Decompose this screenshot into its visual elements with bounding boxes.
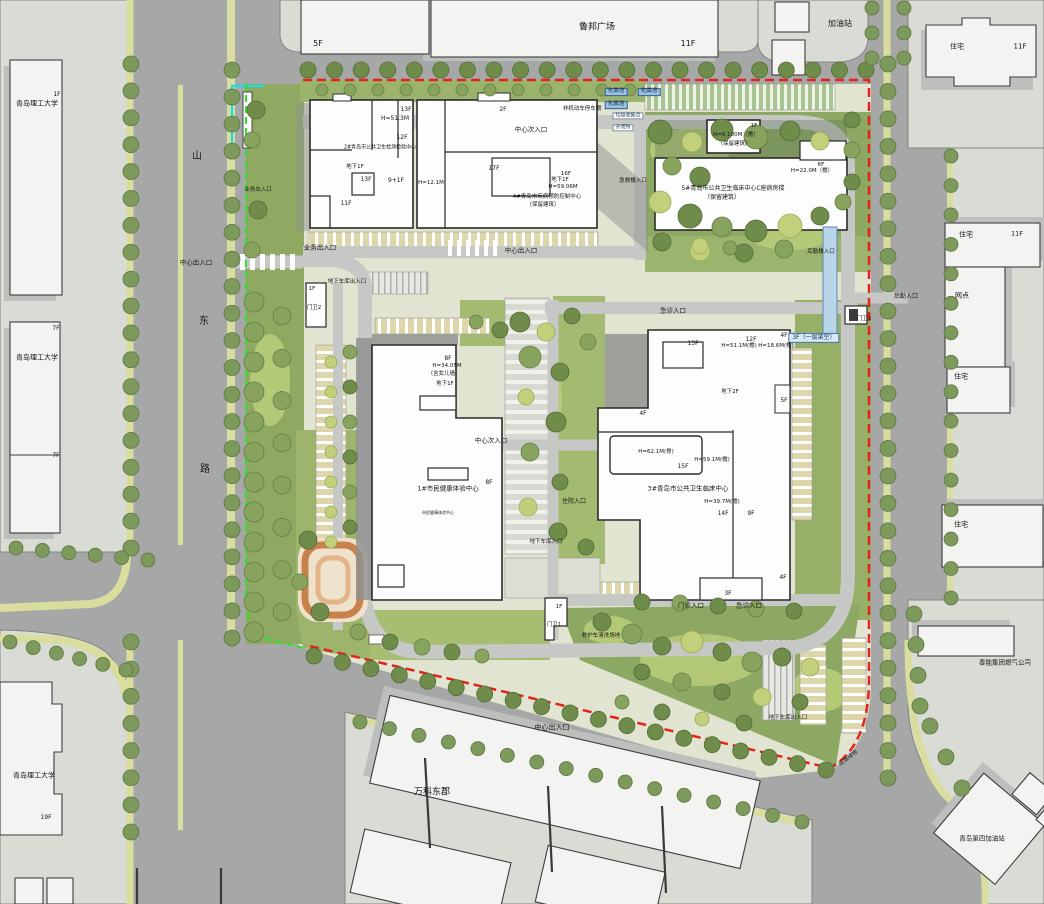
- map-label: 1F: [751, 124, 758, 130]
- map-label: 1F: [53, 92, 60, 98]
- tree: [300, 62, 316, 78]
- map-label: 15F: [677, 464, 688, 470]
- tree: [880, 495, 896, 511]
- tree: [224, 414, 240, 430]
- tree: [353, 715, 367, 729]
- tree: [589, 768, 603, 782]
- tree: [786, 603, 802, 619]
- tree: [123, 459, 139, 475]
- tree: [311, 603, 329, 621]
- entrance-label: 门诊入口: [678, 603, 704, 610]
- tree: [244, 592, 264, 612]
- tree: [880, 413, 896, 429]
- tree: [792, 694, 808, 710]
- tree: [224, 360, 240, 376]
- tree: [344, 84, 356, 96]
- tree: [26, 641, 40, 655]
- tree: [944, 562, 958, 576]
- map-label: 住宅: [950, 43, 964, 50]
- map-label: H=39.7M(檐): [704, 500, 740, 506]
- gas-station-building: [775, 2, 809, 32]
- tree: [477, 686, 493, 702]
- gatehouse1-label: 门卫1: [547, 623, 562, 629]
- tree: [546, 412, 566, 432]
- map-label: 11F: [1011, 231, 1023, 238]
- tree: [699, 62, 715, 78]
- tree: [811, 207, 829, 225]
- tree: [912, 698, 928, 714]
- tree: [428, 84, 440, 96]
- tree: [363, 661, 379, 677]
- tree: [562, 705, 578, 721]
- tree: [880, 358, 896, 374]
- tree: [123, 824, 139, 840]
- tree: [123, 190, 139, 206]
- map-label: 3F: [724, 591, 731, 597]
- tree: [249, 201, 267, 219]
- map-label: 13F: [687, 341, 698, 347]
- map-label: H=51.3M: [381, 116, 409, 122]
- tree: [844, 142, 860, 158]
- lubang-building-11f: [431, 0, 718, 57]
- tree: [513, 62, 529, 78]
- tree: [273, 603, 291, 621]
- tree: [908, 637, 924, 653]
- map-label: 9+1F: [388, 178, 404, 184]
- tree: [801, 658, 819, 676]
- map-label: （保留建筑）: [704, 195, 740, 201]
- tree: [518, 389, 534, 405]
- tree: [325, 446, 337, 458]
- tree: [944, 503, 958, 517]
- map-label: 4F: [779, 575, 786, 581]
- map-label: 8F: [485, 480, 492, 486]
- tree: [123, 244, 139, 260]
- tree: [244, 532, 264, 552]
- tree: [353, 62, 369, 78]
- tree: [649, 191, 671, 213]
- map-label: 化粪池: [605, 101, 628, 109]
- tree: [273, 561, 291, 579]
- entrance-label: 地下车库出入口: [769, 716, 808, 722]
- tree: [123, 137, 139, 153]
- tree: [944, 591, 958, 605]
- tree: [795, 815, 809, 829]
- map-label: 救护车清洗场地: [582, 634, 621, 640]
- tree: [634, 594, 650, 610]
- gatehouse2-label: 门卫2: [307, 306, 322, 312]
- tree: [123, 379, 139, 395]
- parking-east-strip: [792, 348, 812, 520]
- entrance-label: 急诊入口: [660, 308, 686, 315]
- tree: [736, 715, 752, 731]
- tree: [475, 649, 489, 663]
- map-label: 地下2F: [721, 390, 739, 396]
- street-char: 路: [200, 465, 210, 476]
- map-label: （含女儿墙）: [427, 372, 460, 378]
- map-label: 9F: [747, 511, 754, 517]
- tree: [141, 553, 155, 567]
- tree: [692, 238, 708, 254]
- tree: [123, 217, 139, 233]
- tree: [752, 62, 768, 78]
- tree: [880, 56, 896, 72]
- tree: [343, 415, 357, 429]
- tree: [704, 737, 720, 753]
- tree: [534, 699, 550, 715]
- tree: [343, 520, 357, 534]
- tree: [530, 755, 544, 769]
- tree: [647, 724, 663, 740]
- tree: [773, 648, 791, 666]
- tree: [123, 486, 139, 502]
- tree: [316, 84, 328, 96]
- tree: [448, 680, 464, 696]
- tree: [224, 468, 240, 484]
- tree: [695, 712, 709, 726]
- tree: [578, 539, 594, 555]
- tree: [244, 412, 264, 432]
- tree: [725, 62, 741, 78]
- entrance-label: 中心出入口: [505, 248, 538, 255]
- tree: [954, 780, 970, 796]
- university-building-3: [0, 682, 62, 835]
- tree: [944, 473, 958, 487]
- tree: [484, 84, 496, 96]
- tree: [123, 56, 139, 72]
- tree: [224, 143, 240, 159]
- tree: [592, 62, 608, 78]
- tree: [433, 62, 449, 78]
- tree: [539, 62, 555, 78]
- map-label: （保留建筑）: [717, 142, 750, 148]
- tree: [775, 240, 793, 258]
- entrance-label: 急救楼入口: [619, 179, 647, 185]
- tree: [790, 756, 806, 772]
- tree: [761, 749, 777, 765]
- tree: [678, 204, 702, 228]
- tree: [677, 788, 691, 802]
- tree: [880, 578, 896, 594]
- tree: [273, 518, 291, 536]
- tree: [244, 442, 264, 462]
- tree: [469, 315, 483, 329]
- vanke-label: 万科东郡: [414, 788, 450, 797]
- ne-residential-building: [926, 18, 1036, 86]
- tree: [648, 782, 662, 796]
- tree: [224, 62, 240, 78]
- gas-station-label: 加油站: [828, 20, 852, 28]
- tree: [244, 562, 264, 582]
- tree: [224, 197, 240, 213]
- map-label: H=59.06M: [548, 185, 577, 191]
- tree: [382, 634, 398, 650]
- tree: [123, 770, 139, 786]
- tree: [519, 498, 537, 516]
- tree: [564, 308, 580, 324]
- tree: [343, 345, 357, 359]
- gas-company-building: [918, 626, 1014, 656]
- tree: [811, 132, 829, 150]
- tree: [944, 149, 958, 163]
- tree: [818, 762, 834, 778]
- map-label: 5F: [780, 398, 787, 404]
- tree: [723, 241, 737, 255]
- university-label: 青岛理工大学: [16, 354, 58, 361]
- tree: [123, 432, 139, 448]
- street-char: 山: [192, 152, 202, 163]
- map-label: 8F: [444, 356, 451, 362]
- map-label: 1F: [556, 605, 563, 611]
- tree: [123, 298, 139, 314]
- site-plan-canvas: 鲁邦广场5F11F加油站住宅11F青岛理工大学1F山东路中心出入口青岛理工大学7…: [0, 0, 1044, 904]
- tree: [414, 639, 430, 655]
- map-label: 开闭所: [612, 124, 633, 131]
- tree: [244, 622, 264, 642]
- tree: [123, 715, 139, 731]
- tree: [618, 775, 632, 789]
- tree: [648, 120, 672, 144]
- tree: [224, 387, 240, 403]
- map-label: （保留建筑）: [526, 203, 559, 209]
- tree: [897, 51, 911, 65]
- tree: [123, 797, 139, 813]
- tree: [292, 574, 308, 590]
- entrance-label: 地下车库出入口: [328, 280, 367, 286]
- tree: [299, 531, 317, 549]
- tree: [880, 83, 896, 99]
- tree: [880, 660, 896, 676]
- entrance-label: 后勤入口: [894, 294, 918, 300]
- gas-company-label: 泰能集团燃气公司: [979, 660, 1031, 667]
- tree: [645, 62, 661, 78]
- tree: [593, 613, 611, 631]
- tree: [676, 730, 692, 746]
- map-label: 7F: [52, 453, 59, 459]
- map-label: 化粪池: [638, 88, 661, 96]
- map-label: H=34.05M: [432, 364, 461, 370]
- tree: [766, 808, 780, 822]
- tree: [540, 84, 552, 96]
- tree: [713, 643, 731, 661]
- tree: [244, 502, 264, 522]
- map-label: 地下1F: [346, 165, 364, 171]
- tree: [500, 748, 514, 762]
- map-label: 12F: [396, 135, 407, 141]
- entrance-label: 后勤楼入口: [807, 250, 835, 256]
- tree: [865, 26, 879, 40]
- tree: [672, 62, 688, 78]
- tree: [880, 523, 896, 539]
- entrance-label: 中心次入口: [475, 438, 508, 445]
- tree: [844, 174, 860, 190]
- map-label: 非机动车停车棚: [563, 107, 602, 113]
- tree: [880, 633, 896, 649]
- map-label: 13F: [360, 177, 371, 183]
- tree: [224, 522, 240, 538]
- map-label: 住宅: [954, 373, 968, 380]
- tree: [835, 194, 851, 210]
- tree: [615, 695, 629, 709]
- building-4: [417, 93, 597, 228]
- tree: [115, 551, 129, 565]
- tree: [944, 237, 958, 251]
- bike-shed: [645, 84, 835, 110]
- tree: [519, 346, 541, 368]
- tree: [566, 62, 582, 78]
- map-label: H=22.0M（檐）: [791, 169, 833, 175]
- tree: [944, 178, 958, 192]
- tree: [96, 657, 110, 671]
- tree: [224, 332, 240, 348]
- tree: [938, 749, 954, 765]
- map-label: 1F: [309, 287, 316, 293]
- tree: [224, 305, 240, 321]
- map-label: 4F: [639, 411, 646, 417]
- tree: [780, 121, 800, 141]
- tree: [350, 624, 366, 640]
- tree: [778, 214, 802, 238]
- tree: [844, 112, 860, 128]
- tree: [325, 506, 337, 518]
- tree: [123, 743, 139, 759]
- tree: [673, 673, 691, 691]
- tree: [62, 546, 76, 560]
- tree: [880, 386, 896, 402]
- tree: [400, 84, 412, 96]
- wangdian-building: [945, 267, 1005, 367]
- building5-label: 5#青岛市公共卫生临床中心C座病房楼: [681, 186, 784, 192]
- tree: [391, 667, 407, 683]
- tree: [944, 444, 958, 458]
- map-label: 7F: [52, 326, 59, 332]
- gatehouse3-label: 门卫3: [857, 317, 872, 323]
- university-label: 青岛理工大学: [13, 772, 55, 779]
- tree: [224, 116, 240, 132]
- tree: [123, 634, 139, 650]
- tree: [880, 440, 896, 456]
- skybridge-label: 3F（一层架空）: [788, 333, 839, 343]
- tree: [710, 598, 726, 614]
- tree: [944, 208, 958, 222]
- tree: [325, 356, 337, 368]
- map-label: 地下1F: [436, 382, 454, 388]
- tree: [444, 644, 460, 660]
- tree: [580, 334, 596, 350]
- tree: [512, 84, 524, 96]
- tree: [590, 711, 606, 727]
- tree: [681, 631, 703, 653]
- tree: [273, 392, 291, 410]
- tree: [273, 434, 291, 452]
- tree: [123, 325, 139, 341]
- building2-label: 2#青岛市公共卫生检测检验中心: [344, 145, 416, 150]
- tree: [897, 1, 911, 15]
- entrance-label: 急诊入口: [736, 603, 762, 610]
- tree: [123, 513, 139, 529]
- map-label: 4F: [780, 333, 787, 339]
- tree: [273, 476, 291, 494]
- tree: [880, 770, 896, 786]
- tree: [456, 84, 468, 96]
- tree: [49, 646, 63, 660]
- tree: [244, 322, 264, 342]
- map-label: 市民健康体验中心: [422, 511, 454, 515]
- building1-label: 1#市民健康体验中心: [417, 486, 479, 493]
- tree: [244, 352, 264, 372]
- tree: [707, 795, 721, 809]
- tree: [244, 382, 264, 402]
- tree: [343, 450, 357, 464]
- tree: [537, 323, 555, 341]
- tree: [880, 303, 896, 319]
- map-label: 17F: [488, 166, 499, 172]
- skybridge-corridor: [823, 227, 837, 335]
- tree: [123, 352, 139, 368]
- tree: [3, 635, 17, 649]
- tree: [224, 251, 240, 267]
- tree: [944, 326, 958, 340]
- entrance-label: 业务出入口: [304, 245, 337, 252]
- tree: [742, 652, 762, 672]
- tree: [568, 84, 580, 96]
- tree: [753, 688, 771, 706]
- map-label: H=59.1M(檐): [694, 458, 730, 464]
- map-label: 2F: [499, 107, 506, 113]
- tree: [441, 735, 455, 749]
- tree: [73, 652, 87, 666]
- tree: [123, 406, 139, 422]
- tree: [619, 718, 635, 734]
- tree: [880, 248, 896, 264]
- tree: [327, 62, 343, 78]
- tree: [712, 217, 732, 237]
- tree: [910, 667, 926, 683]
- map-label: 住宅: [959, 231, 973, 238]
- tree: [654, 704, 670, 720]
- tree: [420, 673, 436, 689]
- tree: [88, 548, 102, 562]
- tree: [653, 637, 671, 655]
- tree: [735, 244, 753, 262]
- gas-station4-label: 青岛第四加油站: [959, 836, 1005, 843]
- map-label: 14F: [717, 511, 728, 517]
- map-label: 网点: [955, 292, 969, 299]
- tree: [880, 743, 896, 759]
- map-label: H=51.1M(檐): [721, 344, 757, 350]
- tree: [682, 132, 702, 152]
- map-label: 11F: [340, 201, 351, 207]
- tree: [224, 441, 240, 457]
- tree: [343, 380, 357, 394]
- tree: [944, 532, 958, 546]
- tree: [736, 802, 750, 816]
- tree: [880, 111, 896, 127]
- tree: [944, 385, 958, 399]
- tree: [880, 221, 896, 237]
- tree: [244, 472, 264, 492]
- tree: [880, 331, 896, 347]
- tree: [224, 603, 240, 619]
- tree: [653, 233, 671, 251]
- tree: [831, 62, 847, 78]
- tree: [622, 624, 642, 644]
- university-label: 青岛理工大学: [16, 100, 58, 107]
- map-label: 地下1F: [551, 178, 569, 184]
- site-plan-drawing: [0, 0, 1044, 904]
- tree: [123, 271, 139, 287]
- tree: [714, 684, 730, 700]
